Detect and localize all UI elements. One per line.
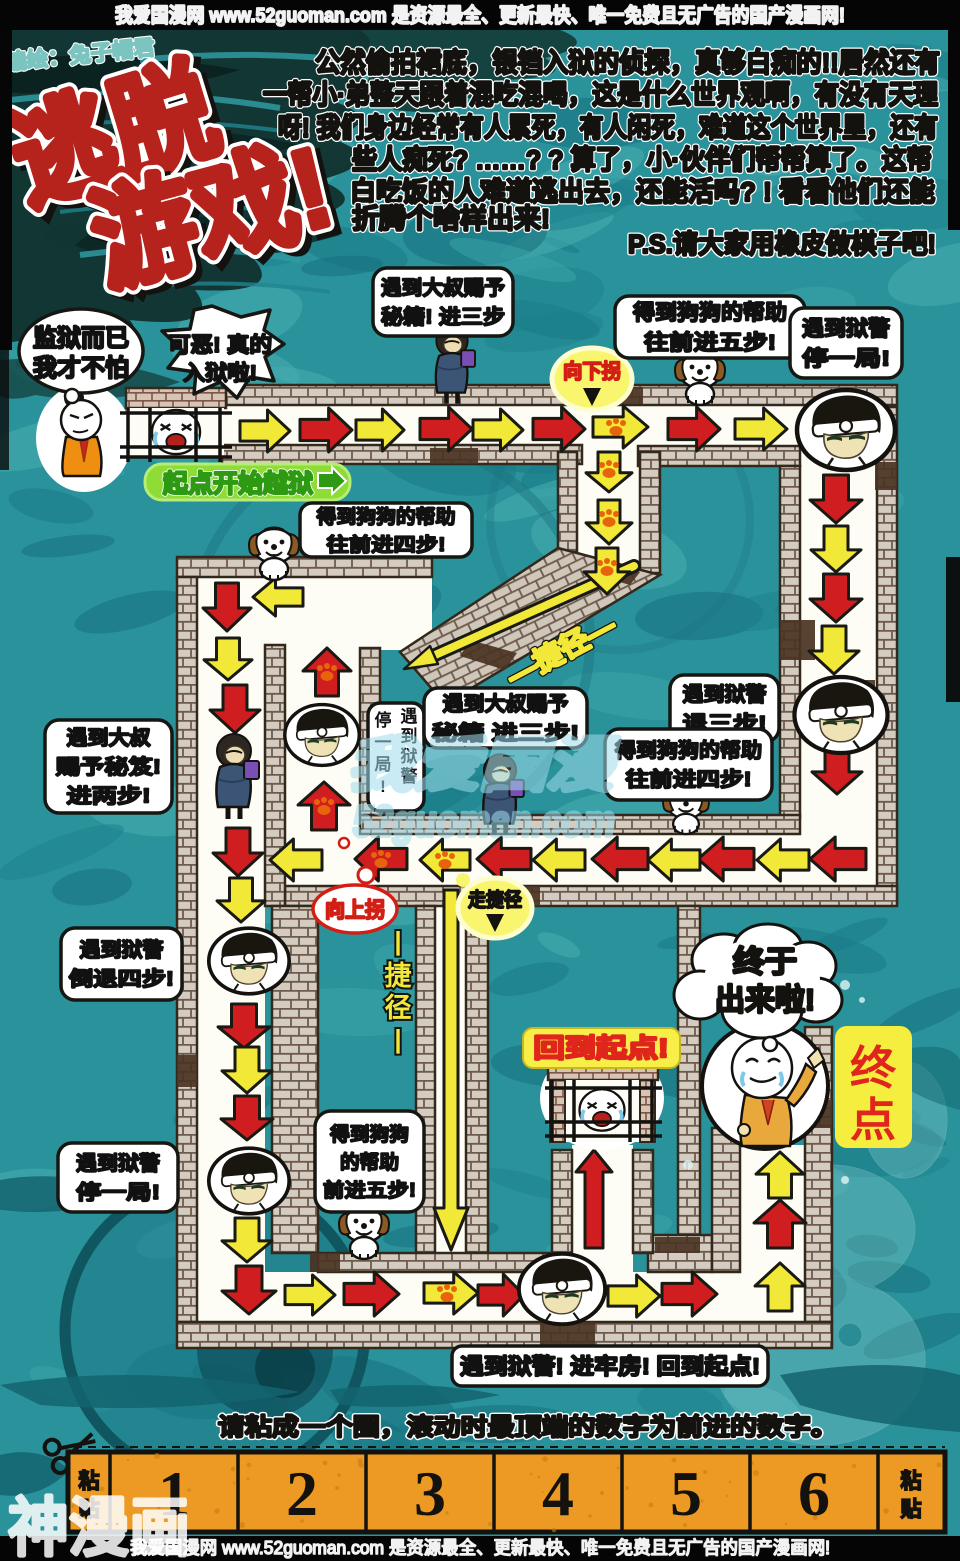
svg-text:呀! 我们身边经常有人累死，有人闲死，难道这个世界里，还有: 呀! 我们身边经常有人累死，有人闲死，难道这个世界里，还有 bbox=[278, 112, 938, 143]
svg-text:停: 停 bbox=[375, 710, 392, 730]
svg-text:请粘成一个圈，滚动时最顶端的数字为前进的数字。: 请粘成一个圈，滚动时最顶端的数字为前进的数字。 bbox=[218, 1413, 838, 1441]
svg-text:可恶! 真的: 可恶! 真的 bbox=[168, 333, 272, 357]
svg-text:终于: 终于 bbox=[733, 946, 797, 979]
svg-text:停一局!: 停一局! bbox=[76, 1180, 160, 1204]
svg-text:我爱国漫网 www.52guoman.com 是资源最全、更: 我爱国漫网 www.52guoman.com 是资源最全、更新最快、唯一免费且无… bbox=[115, 3, 845, 27]
svg-text:往前进五步!: 往前进五步! bbox=[644, 331, 776, 355]
svg-text:白吃饭的人难道逃出去，还能活吗? ! 看看他们还能: 白吃饭的人难道逃出去，还能活吗? ! 看看他们还能 bbox=[350, 176, 935, 207]
svg-text:终: 终 bbox=[850, 1042, 897, 1094]
svg-text:些人痴死? ……? ? 算了，小·伙伴们帮帮算了。这帮: 些人痴死? ……? ? 算了，小·伙伴们帮帮算了。这帮 bbox=[352, 144, 932, 175]
svg-text:2: 2 bbox=[286, 1458, 318, 1529]
svg-text:的帮助: 的帮助 bbox=[340, 1150, 399, 1173]
svg-text:得到狗狗的帮助: 得到狗狗的帮助 bbox=[632, 301, 787, 325]
svg-text:往前进四步!: 往前进四步! bbox=[626, 767, 752, 791]
svg-text:折腾个啥样出来!: 折腾个啥样出来! bbox=[352, 203, 550, 234]
svg-text:得到狗狗的帮助: 得到狗狗的帮助 bbox=[614, 738, 762, 762]
svg-text:遇到狱警! 进牢房! 回到起点!: 遇到狱警! 进牢房! 回到起点! bbox=[460, 1354, 760, 1379]
svg-text:遇到大叔赐予: 遇到大叔赐予 bbox=[381, 277, 505, 300]
svg-text:公然偷拍裙底，银铛入狱的侦探，真够白痴的!!居然还有: 公然偷拍裙底，银铛入狱的侦探，真够白痴的!!居然还有 bbox=[315, 47, 940, 78]
svg-text:点: 点 bbox=[850, 1094, 896, 1146]
svg-text:进两步!: 进两步! bbox=[67, 785, 151, 808]
svg-text:向上拐: 向上拐 bbox=[325, 898, 385, 922]
svg-text:神漫画: 神漫画 bbox=[8, 1492, 190, 1561]
svg-text:52guoman.com: 52guoman.com bbox=[353, 797, 615, 846]
svg-text:遇到狱警: 遇到狱警 bbox=[76, 1151, 160, 1175]
svg-text:停一局!: 停一局! bbox=[802, 347, 890, 371]
svg-text:6: 6 bbox=[798, 1458, 830, 1529]
svg-text:秘籍! 进三步: 秘籍! 进三步 bbox=[381, 305, 505, 329]
svg-text:走捷径: 走捷径 bbox=[468, 888, 522, 911]
svg-text:起点开始越狱: 起点开始越狱 bbox=[163, 470, 313, 498]
svg-text:前进五步!: 前进五步! bbox=[323, 1178, 416, 1201]
svg-text:遇到狱警: 遇到狱警 bbox=[802, 317, 890, 341]
svg-text:赐予秘笈!: 赐予秘笈! bbox=[55, 755, 161, 779]
svg-text:|: | bbox=[394, 1024, 401, 1054]
svg-text:倒退四步!: 倒退四步! bbox=[68, 968, 174, 991]
svg-text:遇到狱警: 遇到狱警 bbox=[683, 682, 767, 706]
svg-text:向下拐: 向下拐 bbox=[563, 359, 621, 383]
svg-text:贴: 贴 bbox=[901, 1497, 922, 1521]
svg-text:4: 4 bbox=[542, 1458, 574, 1529]
svg-text:往前进四步!: 往前进四步! bbox=[327, 533, 446, 556]
svg-text:3: 3 bbox=[414, 1458, 446, 1529]
svg-text:回到起点!: 回到起点! bbox=[534, 1033, 669, 1063]
svg-text:我才不怕: 我才不怕 bbox=[33, 355, 129, 382]
svg-text:入狱啦!: 入狱啦! bbox=[183, 361, 257, 385]
svg-text:捷: 捷 bbox=[385, 961, 413, 991]
svg-text:遇到大叔赐予: 遇到大叔赐予 bbox=[443, 693, 569, 716]
svg-text:监狱而已: 监狱而已 bbox=[33, 325, 129, 352]
svg-text:粘: 粘 bbox=[901, 1470, 922, 1493]
svg-text:得到狗狗: 得到狗狗 bbox=[329, 1122, 409, 1145]
svg-text:遇到狱警: 遇到狱警 bbox=[80, 938, 164, 962]
svg-text:得到狗狗的帮助: 得到狗狗的帮助 bbox=[315, 505, 455, 528]
svg-text:我爱国漫网 www.52guoman.com 是资源最全、更: 我爱国漫网 www.52guoman.com 是资源最全、更新最快、唯一免费且无… bbox=[130, 1538, 830, 1558]
svg-text:粘: 粘 bbox=[79, 1470, 100, 1493]
svg-text:一帮小·弟整天跟着混吃混喝，这是什么世界观啊，有没有天理: 一帮小·弟整天跟着混吃混喝，这是什么世界观啊，有没有天理 bbox=[263, 79, 938, 110]
svg-text:5: 5 bbox=[670, 1458, 702, 1529]
svg-text:P.S.请大家用橡皮做棋子吧!: P.S.请大家用橡皮做棋子吧! bbox=[628, 229, 936, 259]
svg-text:我爱国漫: 我爱国漫 bbox=[348, 733, 620, 798]
svg-text:遇: 遇 bbox=[401, 707, 418, 726]
svg-text:遇到大叔: 遇到大叔 bbox=[67, 727, 152, 750]
svg-text:出来啦!: 出来啦! bbox=[715, 983, 815, 1017]
svg-text:径: 径 bbox=[385, 993, 412, 1023]
svg-text:|: | bbox=[394, 926, 401, 956]
